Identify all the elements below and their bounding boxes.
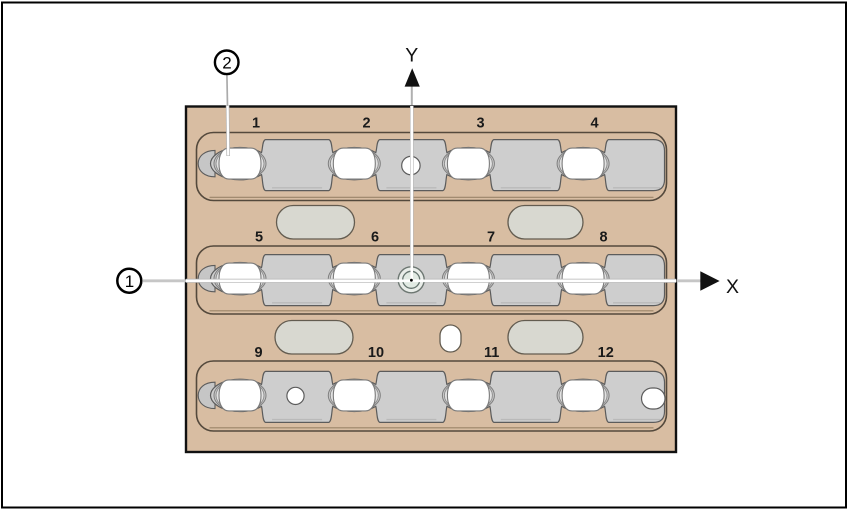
svg-text:1: 1 (252, 116, 260, 132)
svg-text:2: 2 (362, 116, 370, 132)
svg-text:9: 9 (254, 345, 262, 361)
svg-text:11: 11 (484, 345, 499, 361)
svg-text:12: 12 (598, 345, 614, 361)
svg-text:3: 3 (476, 116, 484, 132)
svg-text:10: 10 (368, 345, 384, 361)
svg-text:2: 2 (222, 54, 231, 73)
svg-text:8: 8 (599, 230, 607, 246)
svg-text:X: X (726, 276, 739, 298)
svg-text:4: 4 (590, 116, 598, 132)
svg-text:6: 6 (371, 230, 379, 246)
svg-text:7: 7 (487, 230, 495, 246)
svg-text:Y: Y (405, 45, 418, 67)
svg-text:1: 1 (125, 272, 134, 291)
svg-text:5: 5 (255, 230, 263, 246)
